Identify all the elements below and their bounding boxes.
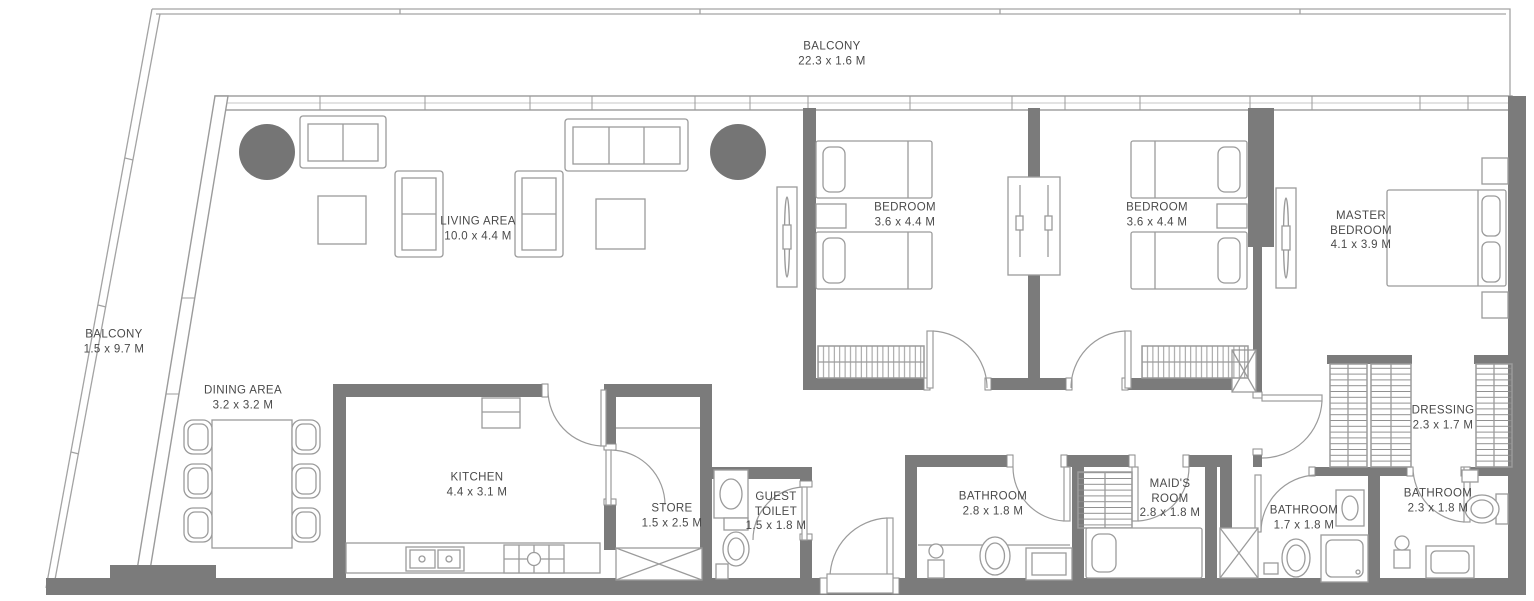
sink-icon [1394, 536, 1410, 568]
room-label-balcony-left: BALCONY 1.5 x 9.7 M [44, 327, 184, 356]
round-table-icon [710, 124, 766, 180]
room-name: LIVING AREA [393, 214, 563, 229]
fridge-icon [482, 398, 520, 428]
tv-unit-icon [777, 187, 797, 287]
nightstand-icon [1482, 158, 1508, 184]
chair-icon [184, 464, 212, 498]
shower-icon [1426, 546, 1474, 578]
room-label-balcony-top: BALCONY 22.3 x 1.6 M [747, 39, 917, 68]
room-dims: 3.2 x 3.2 M [158, 398, 328, 413]
room-name: MAID'S ROOM [1135, 477, 1205, 506]
nightstand-icon [1482, 292, 1508, 318]
room-label-bedroom-2: BEDROOM 3.6 x 4.4 M [1092, 200, 1222, 229]
room-dims: 22.3 x 1.6 M [747, 54, 917, 69]
round-table-icon [239, 124, 295, 180]
room-dims: 3.6 x 4.4 M [1092, 215, 1222, 230]
room-dims: 2.3 x 1.7 M [1388, 418, 1498, 433]
side-table-icon [318, 196, 366, 244]
room-label-kitchen: KITCHEN 4.4 x 3.1 M [407, 470, 547, 499]
door-swing-icon [548, 390, 606, 446]
room-name: BEDROOM [1092, 200, 1222, 215]
wardrobe-icon [1078, 472, 1132, 528]
chair-icon [184, 420, 212, 454]
bed-icon [1131, 141, 1247, 198]
room-label-master-bedroom: MASTER BEDROOM 4.1 x 3.9 M [1317, 209, 1405, 253]
room-name: BALCONY [747, 39, 917, 54]
wardrobe-icon [1142, 346, 1248, 378]
room-dims: 1.7 x 1.8 M [1239, 518, 1369, 533]
door-swing-icon [927, 331, 987, 388]
room-name: STORE [617, 501, 727, 516]
room-dims: 10.0 x 4.4 M [393, 229, 563, 244]
chair-icon [292, 508, 320, 542]
room-label-guest-toilet: GUEST TOILET 1.5 x 1.8 M [741, 490, 811, 534]
room-label-maids-room: MAID'S ROOM 2.8 x 1.8 M [1135, 477, 1205, 521]
door-swing-icon [606, 450, 665, 505]
room-name: BATHROOM [1239, 503, 1369, 518]
sink-icon [928, 544, 944, 578]
room-label-bathroom-2: BATHROOM 1.7 x 1.8 M [1239, 503, 1369, 532]
room-dims: 3.6 x 4.4 M [840, 215, 970, 230]
room-name: BATHROOM [1373, 486, 1503, 501]
room-dims: 4.1 x 3.9 M [1317, 238, 1405, 253]
room-name: MASTER BEDROOM [1317, 209, 1405, 238]
vanity-icon [1026, 548, 1072, 580]
bath-item [1462, 470, 1478, 482]
bed-icon [1131, 232, 1247, 289]
dining-table-icon [212, 420, 292, 548]
room-name: KITCHEN [407, 470, 547, 485]
stove-icon [504, 545, 564, 573]
wardrobe-icon [1330, 364, 1367, 467]
room-label-bathroom-3: BATHROOM 2.3 x 1.8 M [1373, 486, 1503, 515]
chair-icon [184, 508, 212, 542]
room-name: BEDROOM [840, 200, 970, 215]
room-dims: 1.5 x 2.5 M [617, 516, 727, 531]
chair-icon [292, 464, 320, 498]
shaft-cross-icon [1220, 528, 1258, 578]
bed-icon [1086, 528, 1202, 578]
toilet-icon [1282, 539, 1310, 577]
room-label-bathroom-1: BATHROOM 2.8 x 1.8 M [928, 489, 1058, 518]
room-dims: 2.3 x 1.8 M [1373, 501, 1503, 516]
bed-icon [816, 141, 932, 198]
bath-item [716, 564, 728, 579]
chair-icon [292, 420, 320, 454]
door-swing-icon [827, 518, 893, 593]
wardrobe-icon [818, 346, 924, 378]
room-name: DINING AREA [158, 383, 328, 398]
room-label-living-area: LIVING AREA 10.0 x 4.4 M [393, 214, 563, 243]
door-swing-icon [1262, 395, 1322, 458]
room-dims: 1.5 x 1.8 M [741, 519, 811, 534]
room-dims: 4.4 x 3.1 M [407, 485, 547, 500]
shower-icon [1321, 535, 1368, 582]
room-name: BALCONY [44, 327, 184, 342]
bath-item [1264, 563, 1278, 574]
room-label-dining-area: DINING AREA 3.2 x 3.2 M [158, 383, 328, 412]
room-name: GUEST TOILET [741, 490, 811, 519]
room-dims: 2.8 x 1.8 M [928, 504, 1058, 519]
tv-unit-icon [1276, 188, 1296, 288]
floor-plan: BALCONY 22.3 x 1.6 M BALCONY 1.5 x 9.7 M… [0, 0, 1534, 601]
kitchen-sink-icon [406, 547, 464, 571]
wardrobe-icon [1008, 177, 1060, 275]
room-name: DRESSING [1388, 403, 1498, 418]
room-dims: 1.5 x 9.7 M [44, 342, 184, 357]
room-label-dressing: DRESSING 2.3 x 1.7 M [1388, 403, 1498, 432]
toilet-icon [980, 537, 1010, 575]
shaft-cross-icon [616, 548, 702, 580]
room-dims: 2.8 x 1.8 M [1135, 506, 1205, 521]
sofa-icon [565, 119, 688, 171]
coffee-table-icon [596, 199, 645, 249]
bed-icon [816, 232, 932, 289]
sofa-icon [300, 116, 386, 168]
room-label-bedroom-1: BEDROOM 3.6 x 4.4 M [840, 200, 970, 229]
room-label-store: STORE 1.5 x 2.5 M [617, 501, 727, 530]
room-name: BATHROOM [928, 489, 1058, 504]
